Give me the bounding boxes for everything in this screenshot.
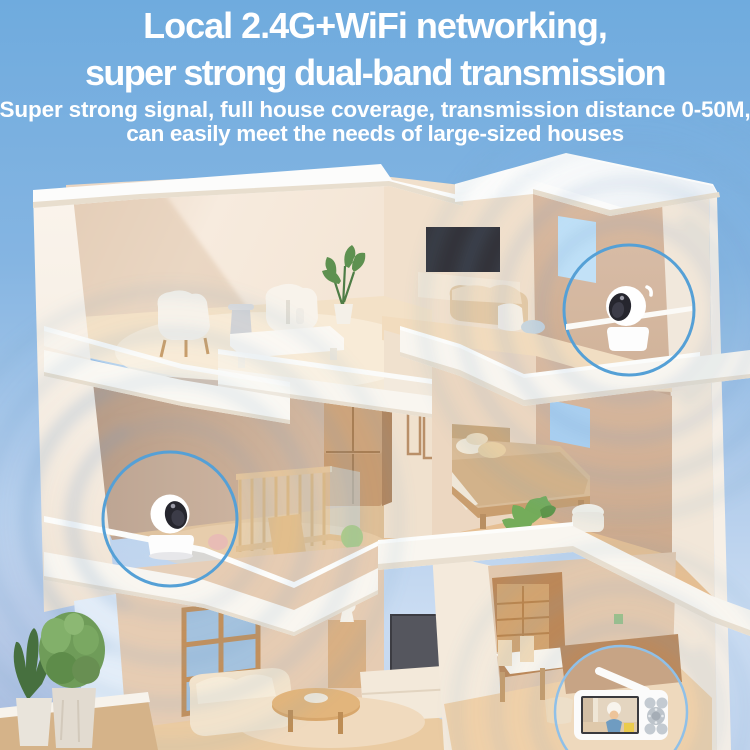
svg-text:Local 2.4G+WiFi networking,: Local 2.4G+WiFi networking, [143, 5, 607, 46]
svg-text:can easily meet the needs of l: can easily meet the needs of large-sized… [126, 121, 624, 146]
svg-text:super strong dual-band transmi: super strong dual-band transmission [85, 52, 665, 93]
svg-text:Super strong signal, full hous: Super strong signal, full house coverage… [0, 97, 750, 122]
